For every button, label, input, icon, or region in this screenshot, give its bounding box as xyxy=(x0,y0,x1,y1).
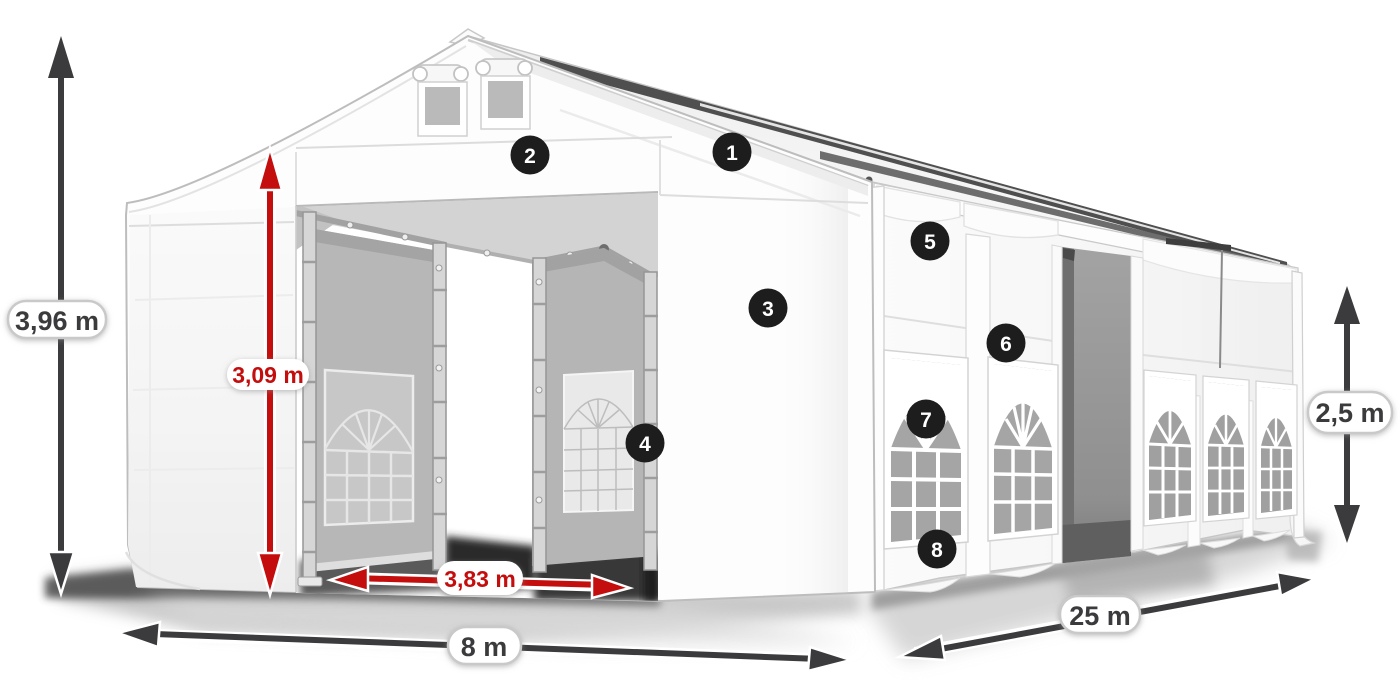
svg-text:3: 3 xyxy=(762,298,774,321)
svg-text:3,83 m: 3,83 m xyxy=(444,566,516,592)
svg-text:2: 2 xyxy=(524,145,536,168)
svg-text:8 m: 8 m xyxy=(461,632,508,662)
svg-text:4: 4 xyxy=(639,433,651,456)
svg-text:6: 6 xyxy=(1000,333,1012,356)
svg-text:1: 1 xyxy=(726,142,738,165)
svg-text:25 m: 25 m xyxy=(1069,601,1131,631)
svg-text:5: 5 xyxy=(924,231,936,254)
svg-text:2,5 m: 2,5 m xyxy=(1315,398,1384,428)
svg-text:7: 7 xyxy=(920,409,932,432)
svg-text:3,09 m: 3,09 m xyxy=(232,362,304,388)
svg-text:3,96 m: 3,96 m xyxy=(15,306,99,336)
svg-text:8: 8 xyxy=(931,539,943,562)
